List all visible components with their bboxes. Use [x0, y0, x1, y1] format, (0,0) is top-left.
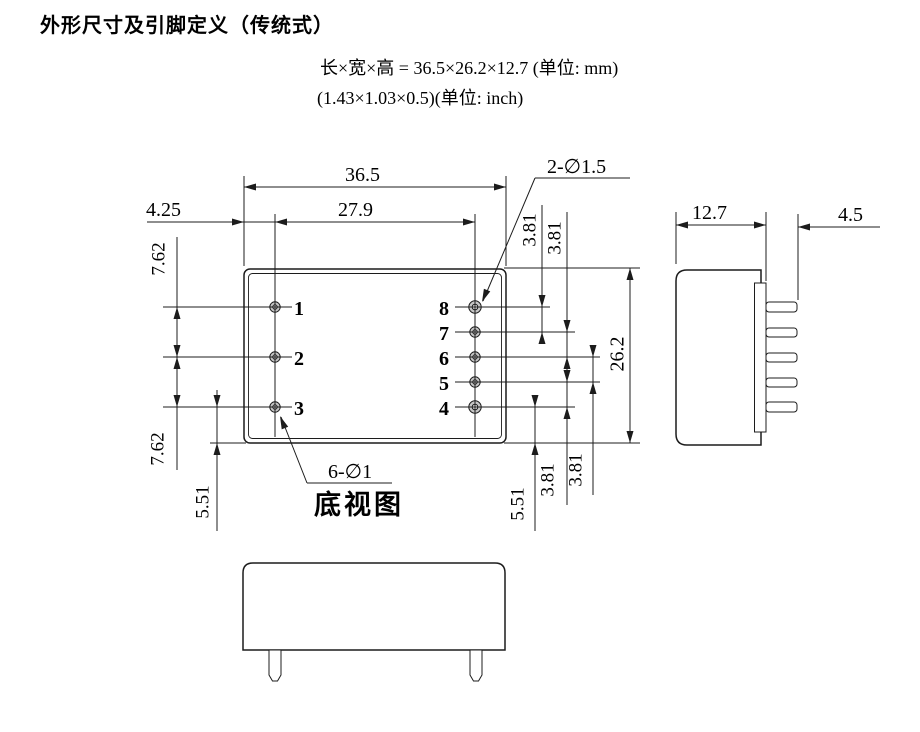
- arrowhead: [174, 357, 181, 369]
- front-view: [243, 563, 505, 681]
- side-view-pin: [766, 402, 797, 412]
- arrowhead: [174, 395, 181, 407]
- arrowhead: [590, 382, 597, 394]
- arrowhead: [244, 184, 256, 191]
- side-view-pin: [766, 328, 797, 337]
- arrowhead: [275, 219, 287, 226]
- dim-right-pitch-d: 3.81: [537, 463, 558, 496]
- side-view-body: [676, 270, 761, 445]
- arrowhead: [590, 345, 597, 357]
- side-view-pin-plate: [755, 283, 767, 432]
- side-view-pin: [766, 353, 797, 362]
- front-view-pin: [470, 650, 482, 681]
- dim-right-pitch-c: 3.81: [565, 453, 586, 486]
- pin-label-5: 5: [439, 373, 449, 395]
- dim-left-pitch-b: 7.62: [147, 432, 168, 465]
- dim-overall-width: 36.5: [345, 164, 380, 186]
- arrowhead: [564, 407, 571, 419]
- arrowhead: [564, 370, 571, 382]
- arrowhead: [174, 307, 181, 319]
- pin-label-1: 1: [294, 298, 304, 320]
- side-view-pin: [766, 378, 797, 387]
- arrowhead: [532, 395, 539, 407]
- bottom-view: 1 2 3 8 7 6 5 4: [244, 269, 506, 443]
- arrowhead: [539, 332, 546, 344]
- arrowhead: [532, 443, 539, 455]
- pin-label-6: 6: [439, 348, 449, 370]
- technical-drawing: 1 2 3 8 7 6 5 4 36.5 27.9 4.25: [0, 0, 920, 732]
- side-view-pin: [766, 302, 797, 312]
- dim-edge-to-pin: 4.25: [146, 199, 181, 221]
- side-view: 12.7 4.5: [676, 202, 880, 445]
- dim-left-bottom-margin: 5.51: [192, 485, 213, 518]
- arrowhead: [214, 443, 221, 455]
- bottom-view-caption: 底视图: [314, 489, 404, 520]
- note-mounting-holes: 2-∅1.5: [547, 156, 606, 178]
- dim-side-width: 12.7: [692, 202, 727, 224]
- note-pin-holes: 6-∅1: [328, 461, 372, 483]
- arrowhead: [494, 184, 506, 191]
- pin-label-2: 2: [294, 348, 304, 370]
- arrowhead: [539, 295, 546, 307]
- dim-pin-row-span: 27.9: [338, 199, 373, 221]
- dim-overall-depth: 26.2: [607, 337, 629, 372]
- dim-right-pitch-b: 3.81: [544, 221, 565, 254]
- dim-pin-length: 4.5: [838, 204, 863, 226]
- front-view-pin: [269, 650, 281, 681]
- front-view-body: [243, 563, 505, 650]
- dim-right-pitch-a: 3.81: [519, 213, 540, 246]
- arrowhead: [214, 395, 221, 407]
- arrowhead: [627, 268, 634, 280]
- arrowhead: [627, 431, 634, 443]
- arrowhead: [564, 320, 571, 332]
- arrowhead: [564, 357, 571, 369]
- dim-right-bottom-margin: 5.51: [507, 487, 528, 520]
- arrowhead: [798, 224, 810, 231]
- dim-left-pitch-a: 7.62: [148, 242, 169, 275]
- drawing-page: 外形尺寸及引脚定义（传统式） 长×宽×高 = 36.5×26.2×12.7 (单…: [0, 0, 920, 732]
- arrowhead: [174, 345, 181, 357]
- arrowhead: [754, 222, 766, 229]
- pin-label-8: 8: [439, 298, 449, 320]
- arrowhead: [232, 219, 244, 226]
- arrowhead: [676, 222, 688, 229]
- bottom-view-outline: [244, 269, 506, 443]
- arrowhead: [463, 219, 475, 226]
- pin-label-4: 4: [439, 398, 449, 420]
- pin-label-7: 7: [439, 323, 449, 345]
- pin-label-3: 3: [294, 398, 304, 420]
